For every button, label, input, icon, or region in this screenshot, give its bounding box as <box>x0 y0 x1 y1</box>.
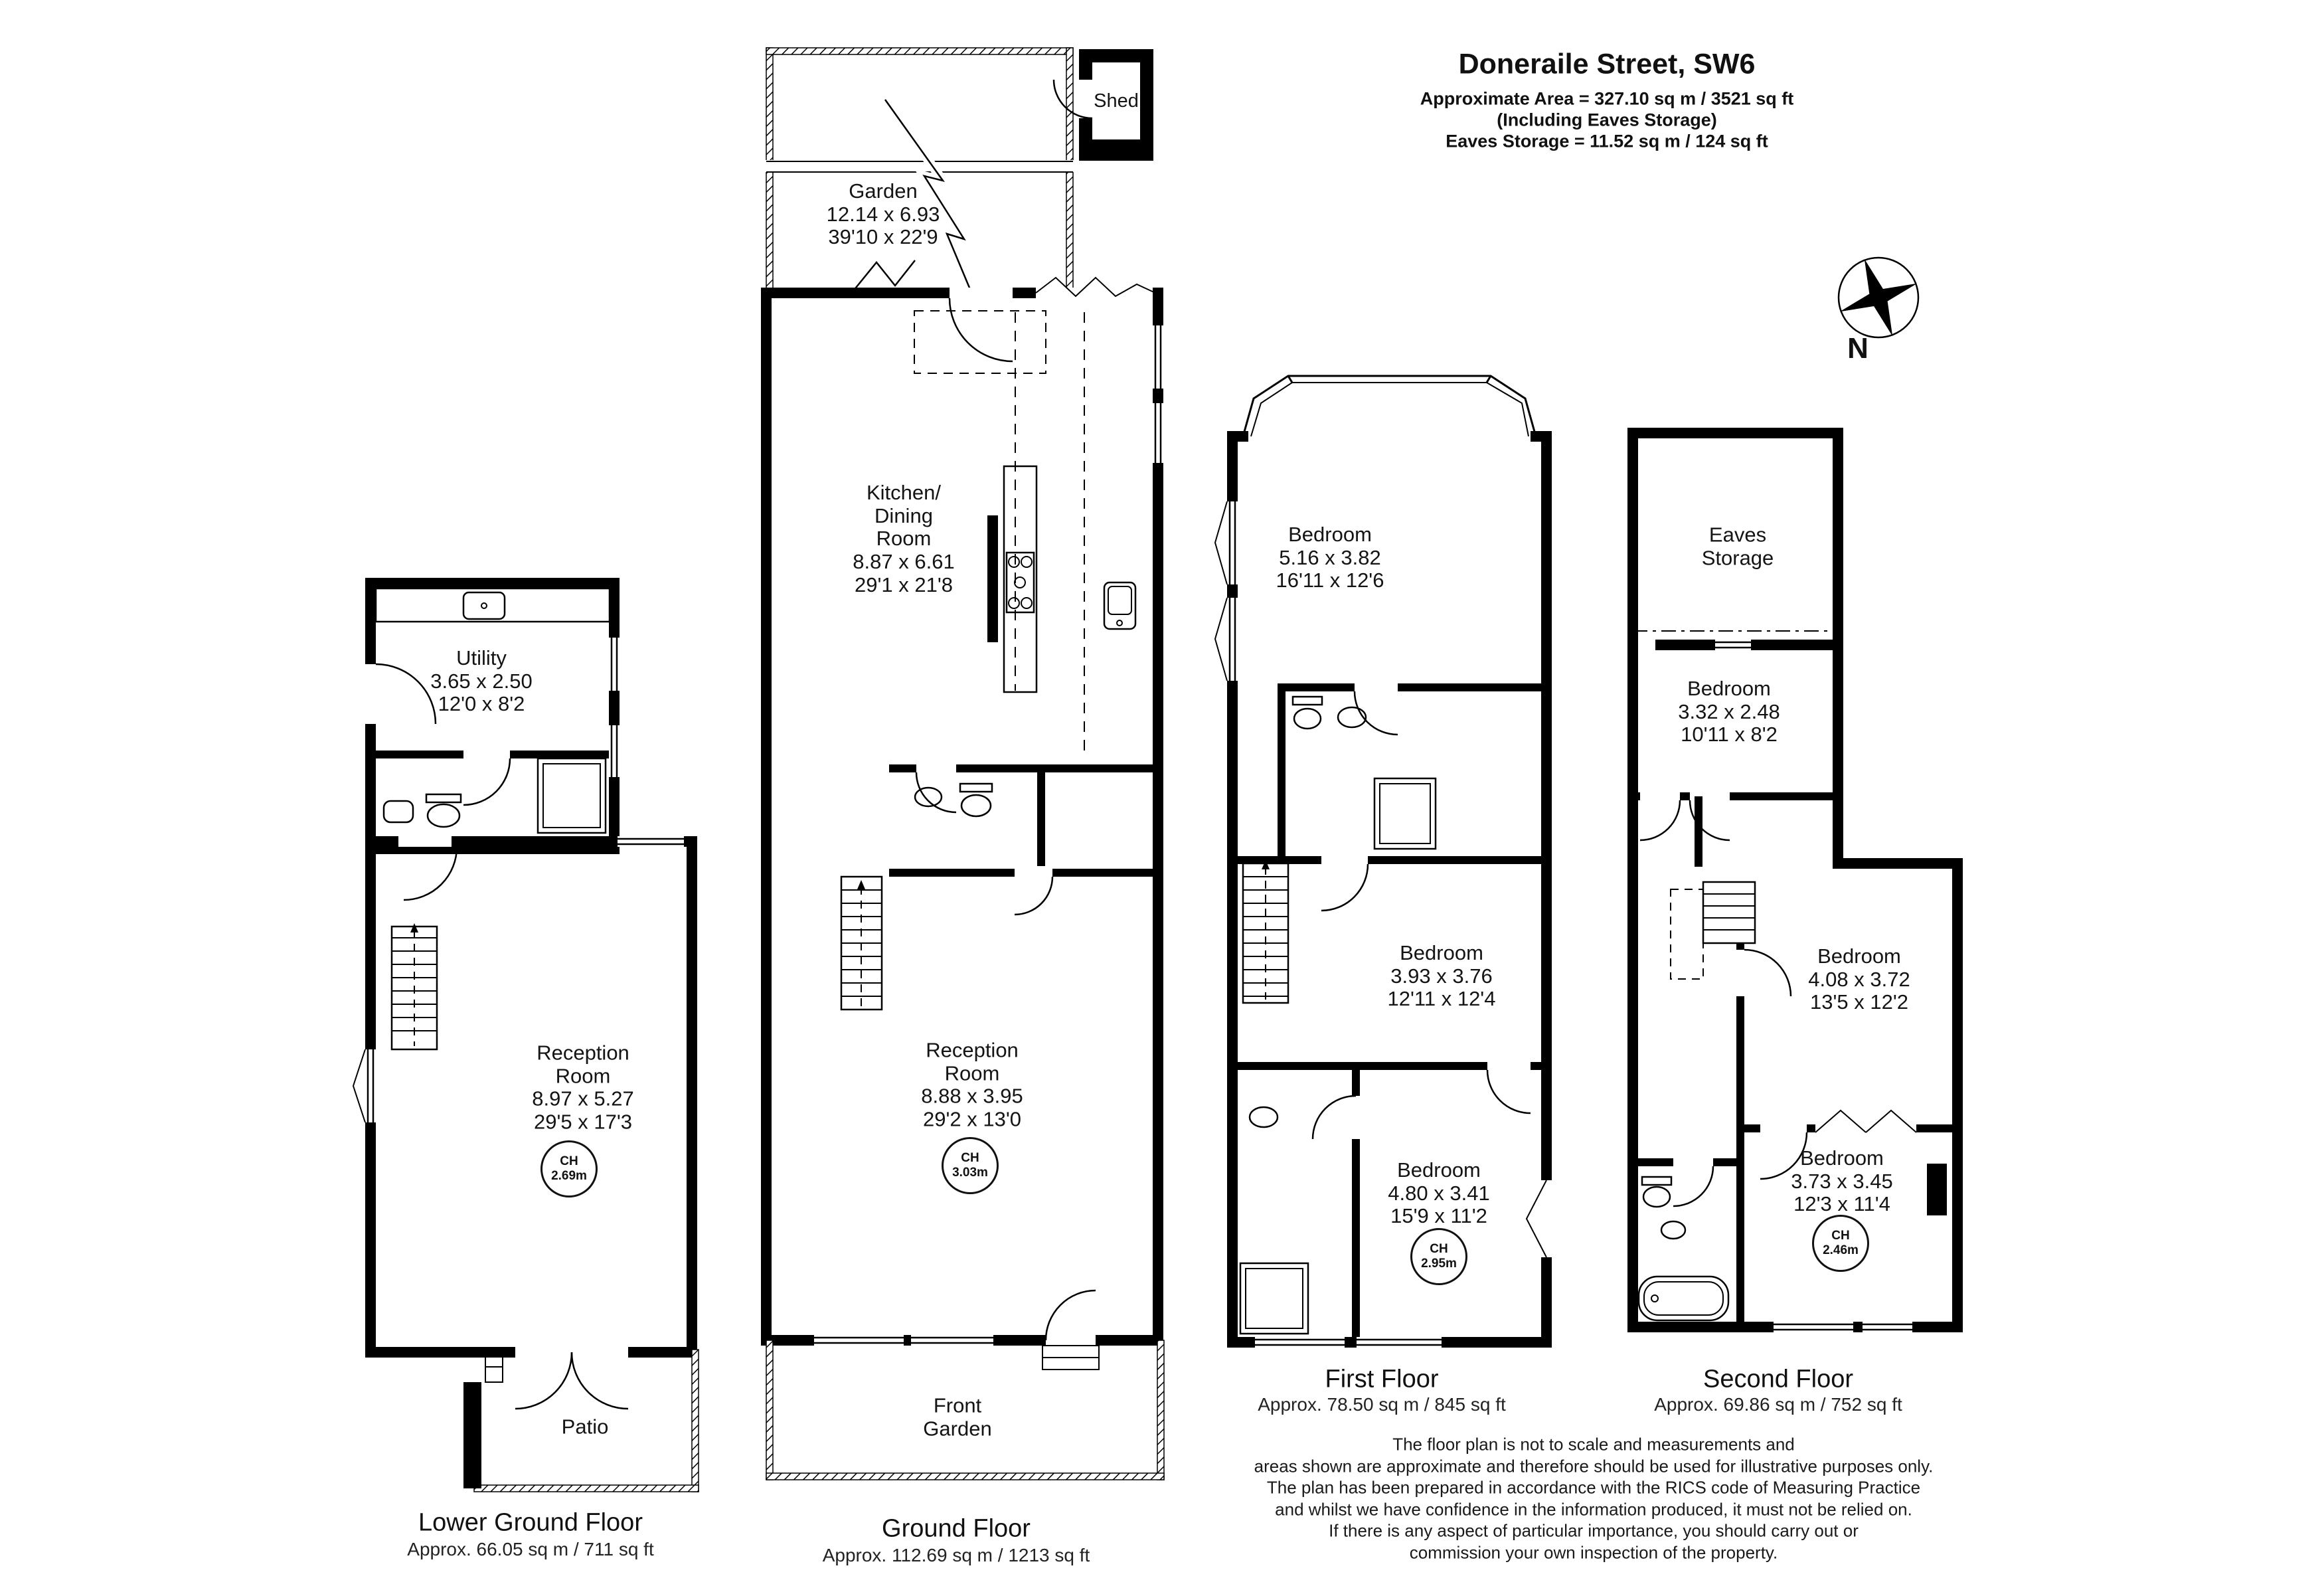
room-label-bedroom-front: Bedroom 5.16 x 3.82 16'11 x 12'6 <box>1276 523 1384 592</box>
floor-area-lower-ground: Approx. 66.05 sq m / 711 sq ft <box>407 1539 653 1560</box>
ceiling-height-badge: CH 2.95m <box>1410 1228 1467 1285</box>
floorplan-canvas <box>0 0 2324 1594</box>
floor-title-lower-ground: Lower Ground Floor <box>418 1509 643 1538</box>
room-label-eaves-storage: Eaves Storage <box>1702 523 1774 569</box>
floor-title-second: Second Floor <box>1703 1366 1853 1394</box>
room-label-kitchen-dining: Kitchen/ Dining Room 8.87 x 6.61 29'1 x … <box>853 482 954 597</box>
room-label-bedroom-back-2: Bedroom 3.73 x 3.45 12'3 x 11'4 <box>1791 1147 1892 1216</box>
room-label-front-garden: Front Garden <box>923 1394 991 1440</box>
north-label: N <box>1847 332 1868 365</box>
floor-area-first: Approx. 78.50 sq m / 845 sq ft <box>1258 1394 1506 1415</box>
page-title: Doneraile Street, SW6 <box>1459 48 1756 81</box>
eaves-storage-area: Eaves Storage = 11.52 sq m / 124 sq ft <box>1446 132 1768 152</box>
floor-area-ground: Approx. 112.69 sq m / 1213 sq ft <box>823 1545 1090 1566</box>
first-floor-plan <box>1215 376 1552 1348</box>
room-label-lg-reception: Reception Room 8.97 x 5.27 29'5 x 17'3 <box>532 1042 633 1134</box>
lower-ground-floor-plan <box>353 583 699 1492</box>
room-label-bedroom-middle-2: Bedroom 4.08 x 3.72 13'5 x 12'2 <box>1808 945 1910 1014</box>
ceiling-height-badge: CH 3.03m <box>942 1137 999 1194</box>
ceiling-height-badge: CH 2.69m <box>540 1140 598 1197</box>
area-note: (Including Eaves Storage) <box>1497 110 1717 131</box>
room-label-g-reception: Reception Room 8.88 x 3.95 29'2 x 13'0 <box>921 1039 1023 1132</box>
room-label-patio: Patio <box>562 1416 609 1439</box>
floor-title-first: First Floor <box>1325 1366 1439 1394</box>
floorplan-page: Doneraile Street, SW6 Approximate Area =… <box>0 0 2324 1594</box>
floor-title-ground: Ground Floor <box>882 1515 1031 1544</box>
room-label-bedroom-middle: Bedroom 3.93 x 3.76 12'11 x 12'4 <box>1388 942 1496 1011</box>
room-label-shed: Shed <box>1094 90 1139 112</box>
room-label-bedroom-back: Bedroom 4.80 x 3.41 15'9 x 11'2 <box>1388 1159 1489 1228</box>
room-label-utility: Utility 3.65 x 2.50 12'0 x 8'2 <box>430 647 532 716</box>
room-label-bedroom-small: Bedroom 3.32 x 2.48 10'11 x 8'2 <box>1678 677 1780 747</box>
ceiling-height-badge: CH 2.46m <box>1812 1215 1869 1272</box>
room-label-garden: Garden 12.14 x 6.93 39'10 x 22'9 <box>827 180 940 249</box>
ground-floor-plan <box>762 48 1164 1480</box>
approximate-area: Approximate Area = 327.10 sq m / 3521 sq… <box>1420 89 1794 110</box>
disclaimer-text: The floor plan is not to scale and measu… <box>1254 1434 1934 1563</box>
floor-area-second: Approx. 69.86 sq m / 752 sq ft <box>1654 1394 1902 1415</box>
compass-icon <box>1826 245 1932 351</box>
